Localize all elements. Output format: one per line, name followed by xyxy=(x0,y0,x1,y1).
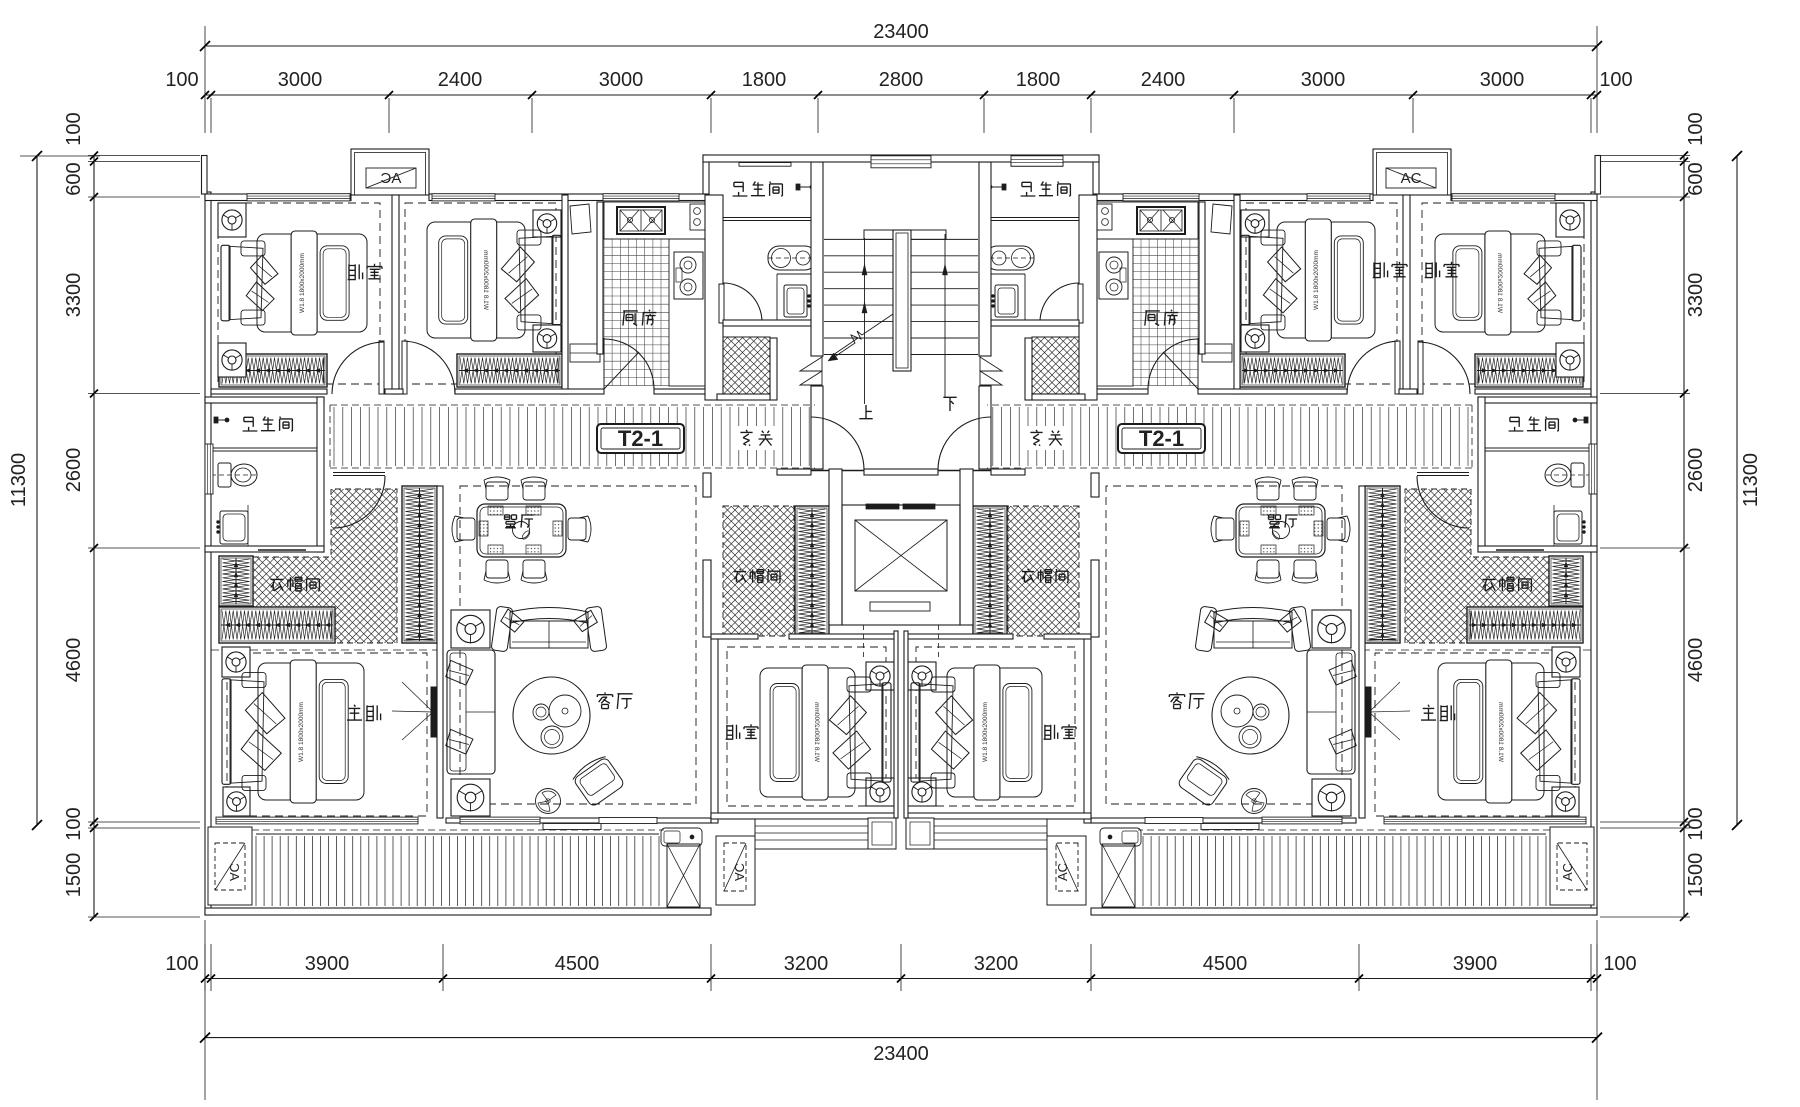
svg-text:AC: AC xyxy=(227,863,242,881)
svg-text:3900: 3900 xyxy=(1453,953,1498,975)
svg-text:100: 100 xyxy=(63,112,85,145)
svg-text:W1.8 1800x2000mm: W1.8 1800x2000mm xyxy=(813,702,820,762)
svg-text:4500: 4500 xyxy=(1203,953,1248,975)
svg-text:4500: 4500 xyxy=(555,953,600,975)
svg-text:1800: 1800 xyxy=(742,69,787,91)
svg-text:600: 600 xyxy=(63,162,85,195)
svg-text:T2-1: T2-1 xyxy=(1139,426,1184,451)
svg-text:2600: 2600 xyxy=(63,448,85,493)
svg-text:3000: 3000 xyxy=(1301,69,1346,91)
svg-text:W1.8 1800x2000mm: W1.8 1800x2000mm xyxy=(482,250,489,310)
svg-text:1500: 1500 xyxy=(1685,853,1707,898)
svg-text:100: 100 xyxy=(165,69,198,91)
svg-text:1800: 1800 xyxy=(1016,69,1061,91)
svg-text:100: 100 xyxy=(1603,953,1636,975)
svg-text:3200: 3200 xyxy=(784,953,829,975)
svg-text:3000: 3000 xyxy=(1480,69,1525,91)
svg-text:2400: 2400 xyxy=(438,69,483,91)
svg-text:2800: 2800 xyxy=(879,69,924,91)
svg-text:1500: 1500 xyxy=(63,853,85,898)
svg-text:100: 100 xyxy=(1599,69,1632,91)
svg-text:100: 100 xyxy=(1685,807,1707,840)
svg-text:AC: AC xyxy=(732,863,747,881)
svg-text:23400: 23400 xyxy=(873,1043,929,1065)
svg-text:600: 600 xyxy=(1685,162,1707,195)
svg-text:100: 100 xyxy=(1685,112,1707,145)
svg-text:3300: 3300 xyxy=(63,273,85,318)
svg-text:100: 100 xyxy=(165,953,198,975)
svg-text:W1.8 1800x2000mm: W1.8 1800x2000mm xyxy=(298,702,305,762)
svg-text:3000: 3000 xyxy=(278,69,323,91)
svg-text:3900: 3900 xyxy=(305,953,350,975)
svg-text:2600: 2600 xyxy=(1685,448,1707,493)
svg-text:3300: 3300 xyxy=(1685,273,1707,318)
svg-text:11300: 11300 xyxy=(1740,453,1762,507)
svg-text:11300: 11300 xyxy=(8,453,30,507)
svg-text:4600: 4600 xyxy=(63,638,85,683)
svg-text:W1.8 1800x2000mm: W1.8 1800x2000mm xyxy=(299,253,306,313)
svg-text:23400: 23400 xyxy=(873,21,929,43)
svg-text:T2-1: T2-1 xyxy=(618,426,663,451)
svg-text:3000: 3000 xyxy=(599,69,644,91)
svg-text:3200: 3200 xyxy=(974,953,1019,975)
svg-text:4600: 4600 xyxy=(1685,638,1707,683)
svg-text:AC: AC xyxy=(380,170,401,187)
svg-text:100: 100 xyxy=(63,807,85,840)
svg-text:2400: 2400 xyxy=(1141,69,1186,91)
